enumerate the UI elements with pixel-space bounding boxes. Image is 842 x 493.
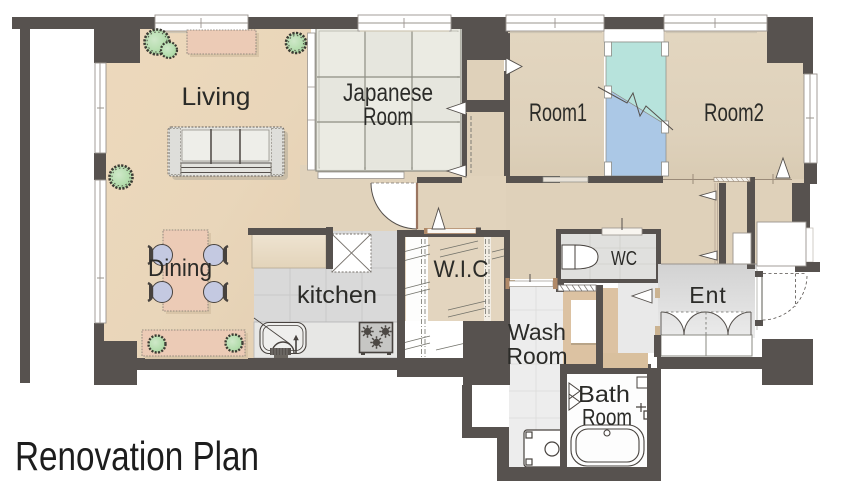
svg-text:Ent: Ent: [689, 282, 727, 308]
svg-text:Dining: Dining: [148, 255, 212, 282]
svg-text:Room: Room: [582, 404, 632, 430]
svg-text:Room1: Room1: [529, 99, 587, 127]
svg-text:Wash: Wash: [508, 319, 566, 345]
svg-text:Room: Room: [363, 103, 413, 131]
svg-text:WC: WC: [611, 248, 637, 270]
svg-text:Room: Room: [507, 343, 568, 369]
svg-text:Renovation Plan: Renovation Plan: [15, 433, 259, 479]
svg-text:Living: Living: [182, 83, 251, 111]
svg-text:kitchen: kitchen: [297, 282, 377, 309]
svg-text:Room2: Room2: [704, 99, 764, 127]
svg-text:W.I.C: W.I.C: [434, 256, 489, 283]
